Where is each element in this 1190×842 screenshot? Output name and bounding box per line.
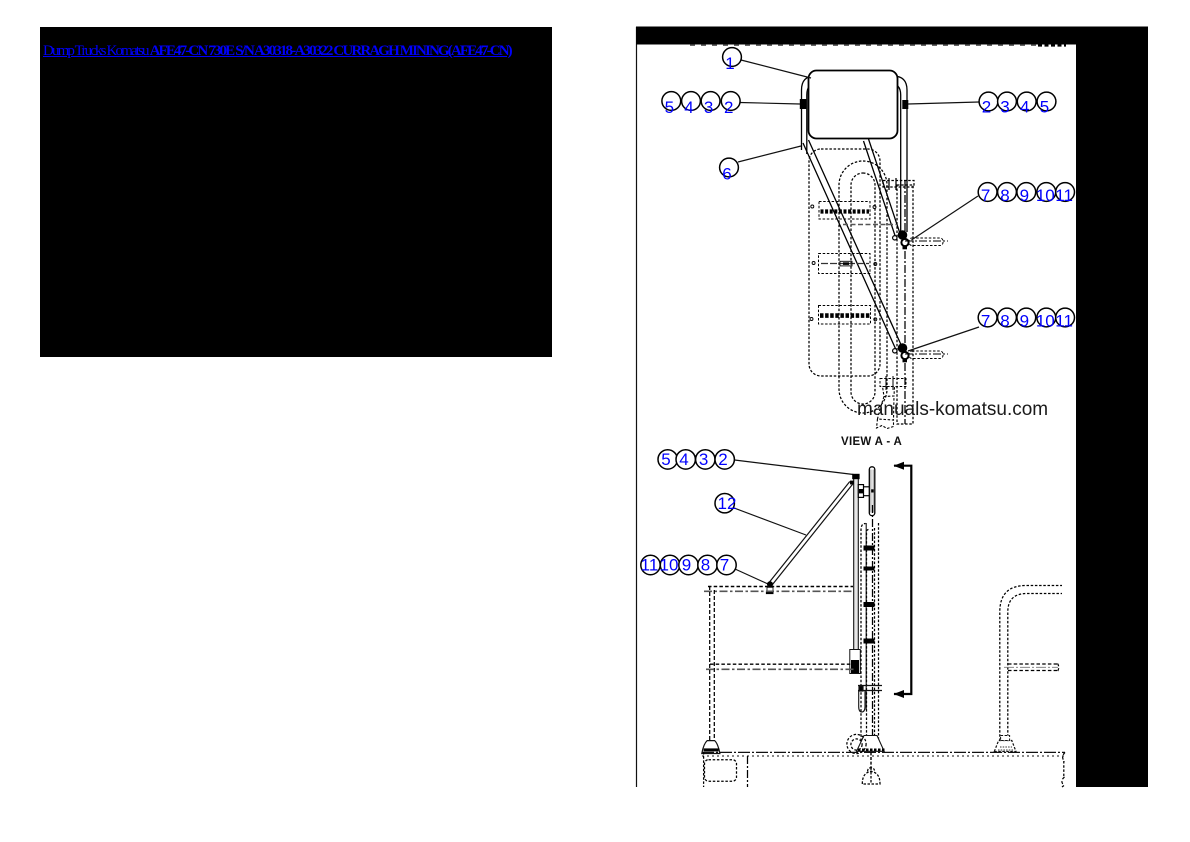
svg-text:3: 3	[699, 450, 708, 469]
svg-text:5: 5	[661, 450, 670, 469]
svg-text:1: 1	[725, 54, 734, 73]
svg-text:manuals-komatsu.com: manuals-komatsu.com	[857, 399, 1048, 420]
svg-text:11: 11	[1055, 312, 1073, 331]
svg-text:12: 12	[718, 494, 737, 513]
svg-text:4: 4	[684, 98, 693, 117]
svg-text:2: 2	[724, 98, 733, 117]
svg-text:2: 2	[718, 450, 727, 469]
svg-text:5: 5	[665, 98, 674, 117]
svg-text:11: 11	[641, 556, 659, 575]
svg-text:7: 7	[981, 186, 990, 205]
svg-text:4: 4	[1020, 98, 1029, 117]
svg-text:2: 2	[982, 98, 991, 117]
svg-text:5: 5	[1040, 98, 1049, 117]
svg-text:11: 11	[1055, 186, 1073, 205]
svg-text:3: 3	[1000, 98, 1009, 117]
svg-text:8: 8	[1000, 186, 1009, 205]
svg-text:9: 9	[1020, 312, 1029, 331]
svg-text:10: 10	[1036, 312, 1055, 331]
svg-text:10: 10	[660, 556, 679, 575]
svg-text:10: 10	[1036, 186, 1055, 205]
svg-text:8: 8	[701, 556, 710, 575]
svg-text:VIEW A - A: VIEW A - A	[841, 436, 902, 448]
svg-text:9: 9	[682, 556, 691, 575]
svg-text:6: 6	[722, 165, 731, 184]
svg-text:7: 7	[981, 312, 990, 331]
svg-text:4: 4	[679, 450, 688, 469]
svg-text:8: 8	[1000, 312, 1009, 331]
svg-text:7: 7	[720, 556, 729, 575]
svg-text:3: 3	[704, 98, 713, 117]
svg-text:9: 9	[1020, 186, 1029, 205]
